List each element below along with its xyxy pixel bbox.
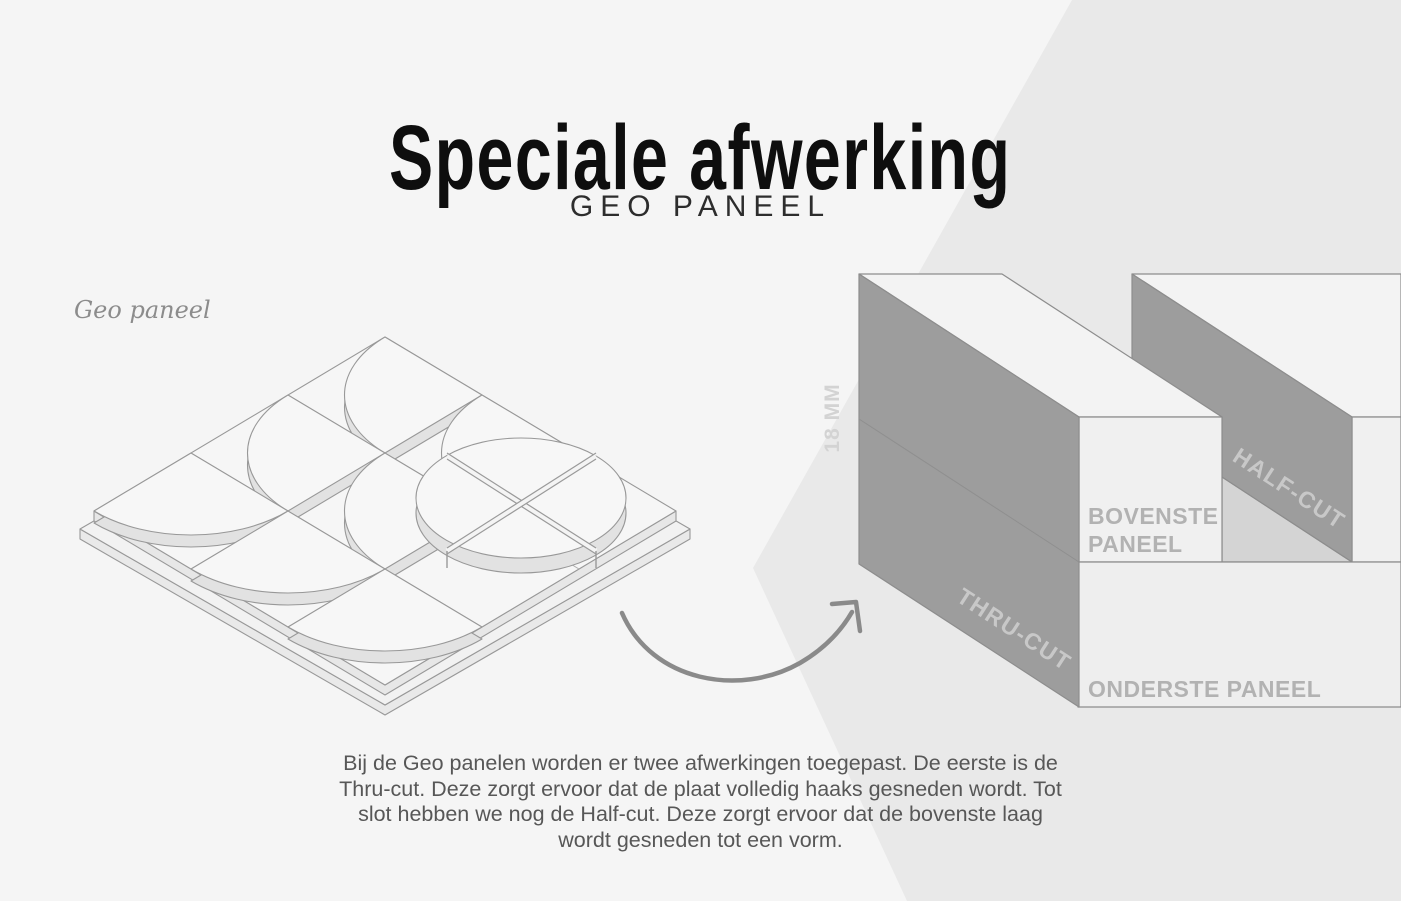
thickness-label: 18 MM bbox=[821, 383, 844, 452]
description-line: Thru-cut. Deze zorgt ervoor dat de plaat… bbox=[339, 777, 1062, 803]
top-panel-label-line1: BOVENSTE bbox=[1088, 503, 1219, 529]
description-paragraph: Bij de Geo panelen worden er twee afwerk… bbox=[339, 751, 1062, 853]
page-subtitle: GEO PANEEL bbox=[0, 190, 1401, 224]
bottom-panel-label: ONDERSTE PANEEL bbox=[1088, 676, 1321, 702]
quartered-circle-tile bbox=[416, 438, 626, 573]
slide-canvas: 18 MM THRU-CUT HALF-CUT BOVENSTE PANEEL … bbox=[0, 0, 1401, 901]
top-panel-label-line2: PANEEL bbox=[1088, 531, 1183, 557]
description-line: Bij de Geo panelen worden er twee afwerk… bbox=[339, 751, 1062, 777]
description-line: slot hebben we nog de Half-cut. Deze zor… bbox=[339, 802, 1062, 828]
geo-panel-illustration bbox=[80, 337, 690, 715]
description-line: wordt gesneden tot een vorm. bbox=[339, 828, 1062, 854]
half-cut-strip-front-face bbox=[1352, 417, 1401, 562]
geo-panel-caption: Geo paneel bbox=[74, 296, 211, 324]
